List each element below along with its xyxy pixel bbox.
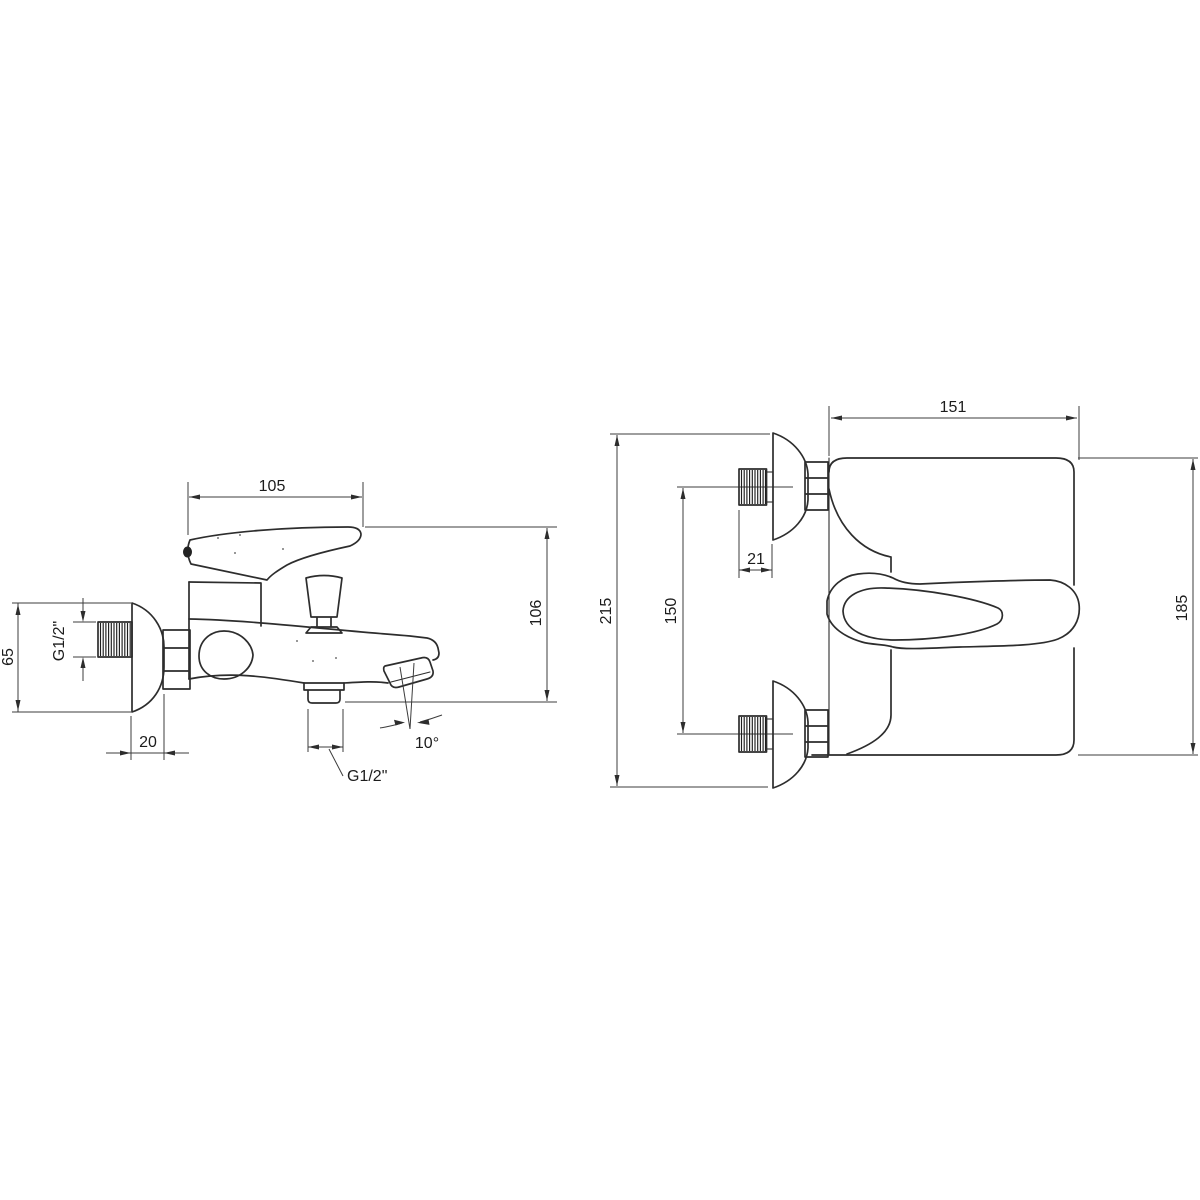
- front-body-neck-lower: [847, 650, 891, 754]
- side-connection-hub: [199, 631, 253, 679]
- side-bottom-outlet: [304, 683, 344, 703]
- side-inlet-thread: [98, 622, 132, 657]
- front-top-connector: [677, 433, 828, 540]
- dim-label-g12-outlet: G1/2": [347, 768, 387, 785]
- side-handle-button-icon: [183, 547, 192, 558]
- side-handle: [188, 527, 361, 580]
- side-escutcheon: [132, 603, 164, 712]
- front-handle-grip: [843, 588, 1002, 640]
- front-handle: [827, 573, 1079, 648]
- front-body-neck-upper: [829, 489, 891, 572]
- front-view-faucet: [677, 433, 1079, 788]
- dim-label-g12-inlet: G1/2": [51, 621, 68, 661]
- dim-body-width: 151: [829, 399, 1079, 460]
- side-union-nut: [163, 630, 190, 689]
- front-body-lower: [812, 648, 1074, 755]
- dim-inlet-centers: 150: [663, 488, 686, 733]
- dim-label-65: 65: [0, 648, 17, 666]
- technical-drawing-canvas: 105 106 65 G1/2" 20: [0, 0, 1200, 1200]
- side-view-faucet: [98, 527, 557, 712]
- front-body-upper: [829, 458, 1074, 585]
- dim-label-150: 150: [663, 598, 680, 625]
- dim-label-105: 105: [259, 478, 286, 495]
- dim-label-151: 151: [940, 399, 967, 416]
- dim-thread-length: 21: [739, 510, 772, 578]
- dim-label-21: 21: [747, 551, 765, 568]
- front-bottom-connector: [677, 681, 828, 788]
- dim-body-height: 106: [528, 528, 550, 701]
- dim-label-215: 215: [598, 598, 615, 625]
- dim-label-185: 185: [1174, 595, 1191, 622]
- dim-label-106: 106: [528, 600, 545, 627]
- dim-outlet-thread: G1/2": [308, 709, 387, 785]
- front-view: 151 215 150 21 185: [598, 399, 1198, 788]
- dim-inlet-thread: G1/2": [51, 598, 96, 681]
- dim-label-20: 20: [139, 734, 157, 751]
- side-body-top-edge: [189, 619, 439, 660]
- dim-label-10deg: 10°: [415, 735, 439, 752]
- side-diverter-knob: [306, 576, 342, 634]
- side-view: 105 106 65 G1/2" 20: [0, 478, 557, 785]
- side-spout: [384, 658, 433, 688]
- dim-body-side-height: 185: [1078, 458, 1198, 755]
